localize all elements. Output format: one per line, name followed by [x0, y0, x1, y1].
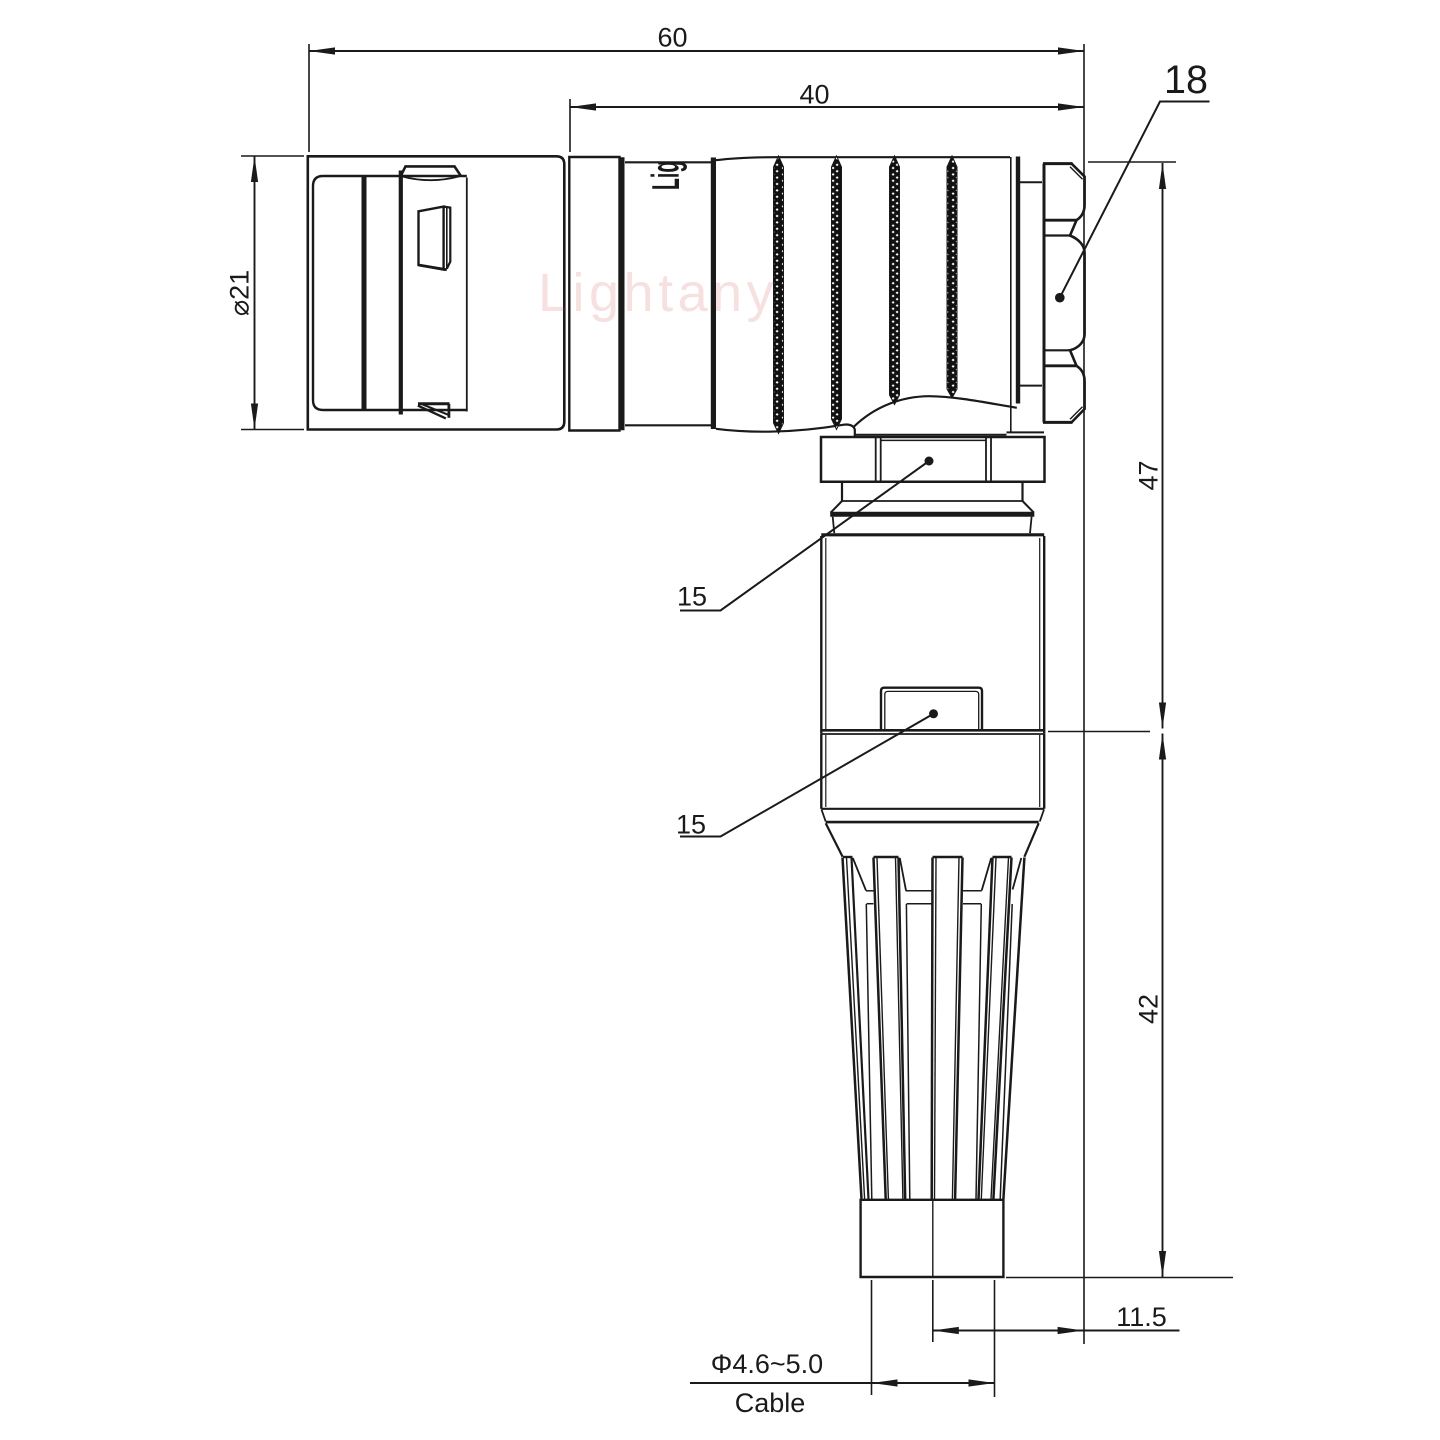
svg-text:18: 18 — [1164, 58, 1208, 102]
svg-text:60: 60 — [657, 23, 687, 53]
svg-text:15: 15 — [676, 810, 706, 840]
svg-text:47: 47 — [1134, 460, 1164, 490]
svg-text:Φ4.6~5.0: Φ4.6~5.0 — [711, 1349, 823, 1379]
svg-text:Cable: Cable — [735, 1388, 806, 1418]
svg-text:Lightany: Lightany — [538, 263, 778, 323]
svg-text:40: 40 — [799, 80, 829, 110]
svg-text:11.5: 11.5 — [1116, 1302, 1167, 1332]
svg-text:15: 15 — [677, 582, 707, 612]
svg-text:42: 42 — [1134, 994, 1164, 1024]
svg-text:Lig: Lig — [644, 161, 688, 190]
svg-text:⌀21: ⌀21 — [225, 270, 255, 316]
